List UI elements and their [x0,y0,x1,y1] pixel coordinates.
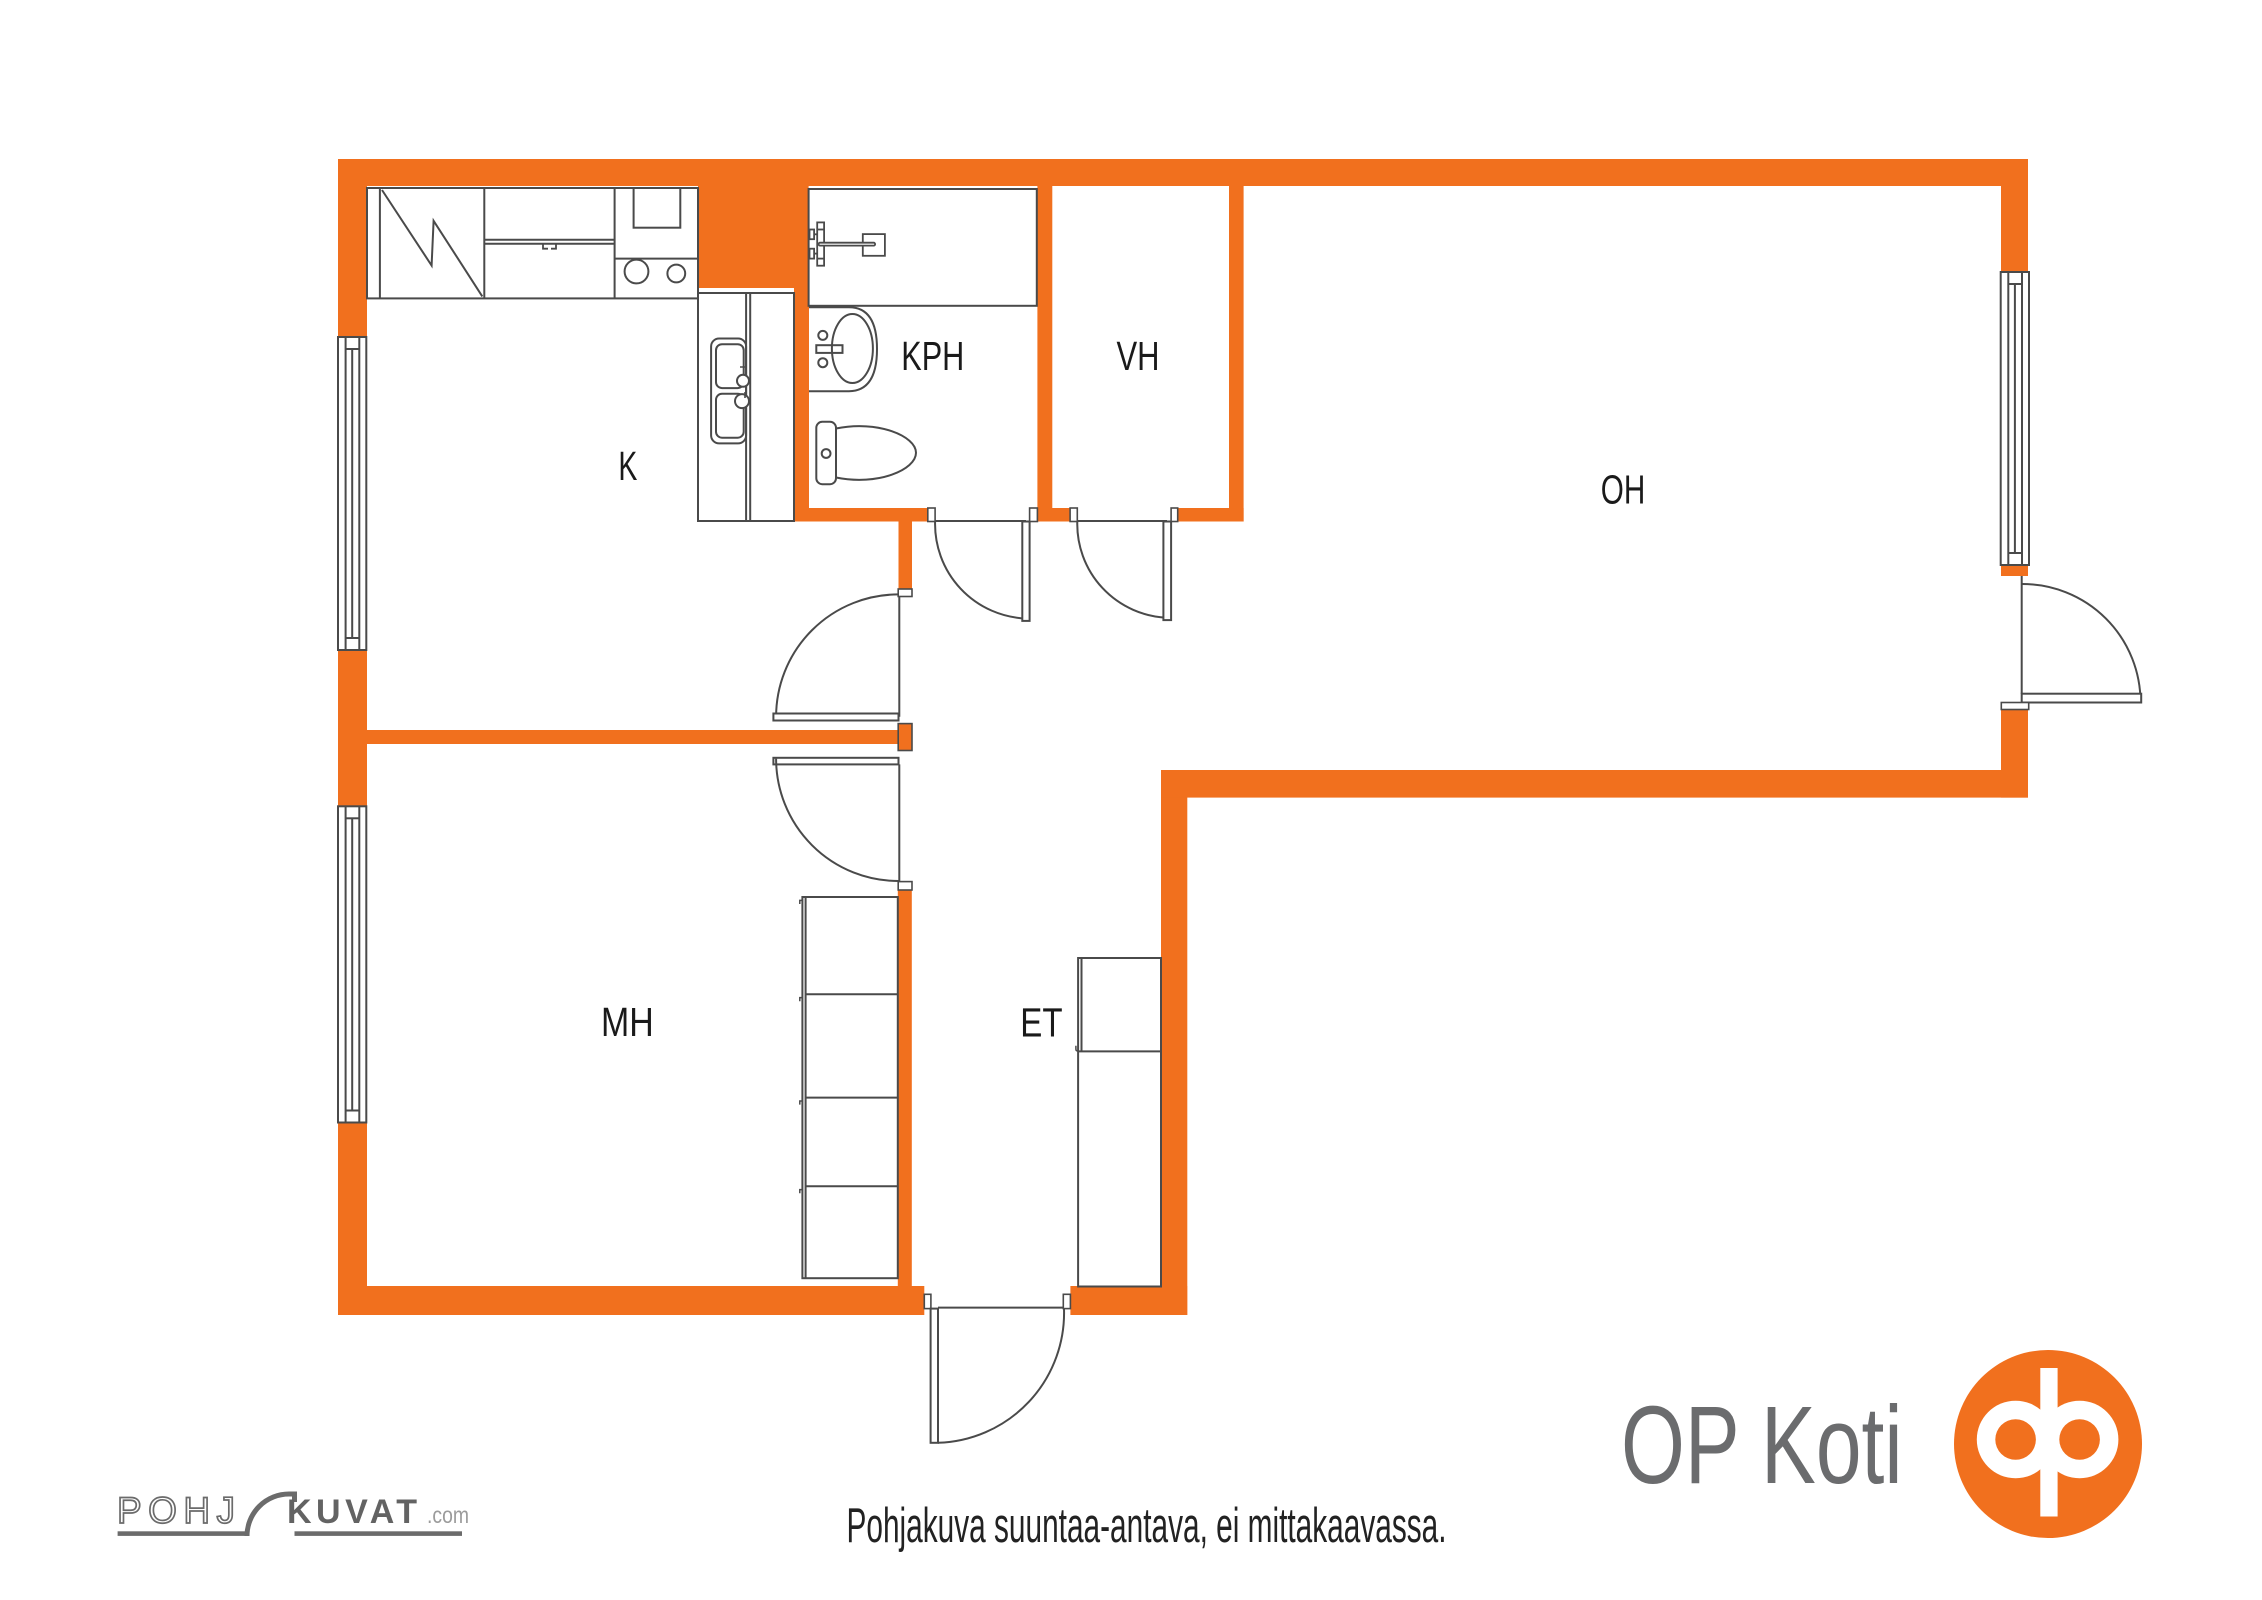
svg-text:VH: VH [1117,333,1160,379]
svg-text:K: K [618,443,637,489]
svg-text:OH: OH [1601,467,1646,513]
svg-text:KPH: KPH [901,333,964,379]
svg-text:Pohjakuva suuntaa-antava, ei m: Pohjakuva suuntaa-antava, ei mittakaavas… [847,1499,1447,1553]
svg-text:OP Koti: OP Koti [1621,1384,1903,1507]
svg-text:ET: ET [1020,1000,1062,1046]
svg-text:.com: .com [427,1502,469,1528]
svg-text:POHJ: POHJ [117,1490,235,1531]
svg-text:KUVAT: KUVAT [287,1493,422,1531]
svg-text:MH: MH [601,999,654,1045]
